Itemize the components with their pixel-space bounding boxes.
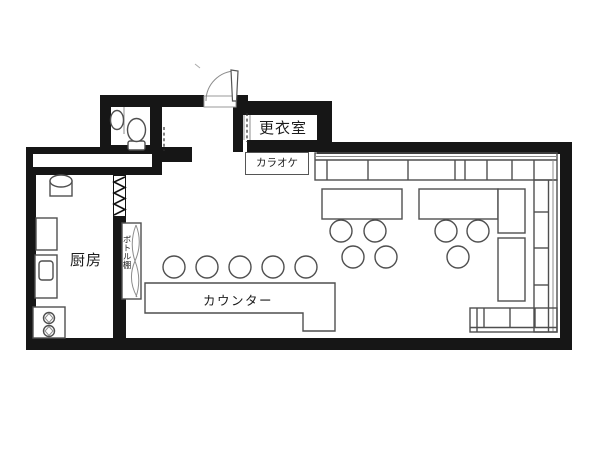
bench-seating-bottom bbox=[470, 308, 557, 332]
chair bbox=[467, 220, 489, 242]
changing-room-wall-left bbox=[233, 101, 243, 152]
door-leaf bbox=[231, 70, 238, 101]
chair bbox=[435, 220, 457, 242]
kitchen-hatch-opening bbox=[113, 176, 127, 216]
chair bbox=[342, 246, 364, 268]
chair bbox=[364, 220, 386, 242]
dining-table-2 bbox=[419, 189, 498, 219]
stool bbox=[229, 256, 251, 278]
floor-plan-drawing bbox=[0, 0, 600, 450]
floor-plan: 更衣室 カラオケ 厨房 ボトル棚 カウンター bbox=[0, 0, 600, 450]
bottle-shelf-label: ボトル棚 bbox=[121, 235, 132, 301]
tables bbox=[322, 189, 525, 301]
kitchen-pass-window bbox=[33, 154, 152, 167]
stool bbox=[295, 256, 317, 278]
wall-right bbox=[560, 142, 572, 350]
chair bbox=[375, 246, 397, 268]
foyer-wall-stub bbox=[162, 147, 192, 162]
chair bbox=[447, 246, 469, 268]
counter-label: カウンター bbox=[162, 290, 314, 309]
karaoke-label: カラオケ bbox=[256, 157, 298, 169]
karaoke-machine: カラオケ bbox=[245, 152, 309, 175]
door-threshold bbox=[204, 96, 236, 107]
wash-basin bbox=[111, 111, 124, 130]
kitchen-sink bbox=[39, 261, 53, 280]
kitchen-pot bbox=[50, 175, 72, 187]
toilet-room bbox=[111, 107, 146, 150]
kitchen-worktop bbox=[36, 218, 57, 250]
kitchen-label: 厨房 bbox=[63, 249, 109, 270]
wall-bottom bbox=[26, 338, 572, 350]
side-table-lower bbox=[498, 238, 525, 301]
stool bbox=[262, 256, 284, 278]
counter-stools bbox=[163, 256, 317, 278]
bench-seating-top bbox=[315, 153, 557, 180]
toilet-base bbox=[128, 141, 145, 150]
stool bbox=[196, 256, 218, 278]
dining-table-1 bbox=[322, 189, 402, 219]
changing-room-label: 更衣室 bbox=[249, 117, 317, 138]
chair bbox=[330, 220, 352, 242]
stool bbox=[163, 256, 185, 278]
tick-mark bbox=[195, 64, 200, 68]
toilet-bowl bbox=[128, 119, 146, 142]
changing-room-wall-bottom bbox=[247, 140, 317, 152]
side-table-upper bbox=[498, 189, 525, 233]
table-chairs bbox=[330, 220, 489, 268]
bench-seating-right bbox=[534, 160, 557, 332]
wall-top-right bbox=[327, 142, 572, 154]
changing-room-wall-right bbox=[317, 101, 332, 154]
